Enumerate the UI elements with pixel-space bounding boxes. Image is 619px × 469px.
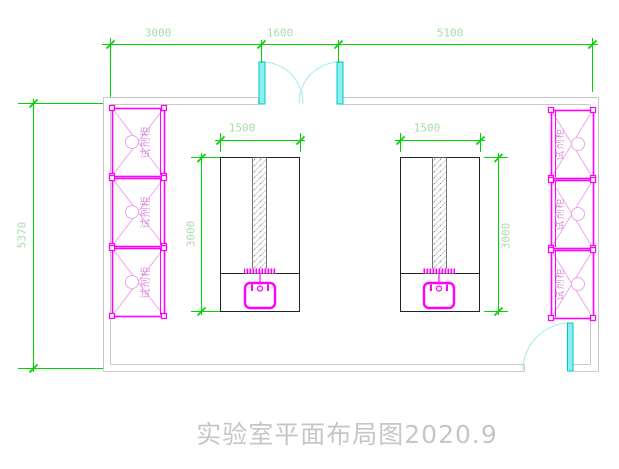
reagent-cabinets: [110, 106, 596, 321]
dimension-lines: [18, 38, 598, 373]
knob-icon: [572, 138, 585, 151]
knob-icon: [126, 136, 139, 149]
bench-reagent-shelf-strip: [253, 158, 267, 274]
dim-label-bench-right-width: 1500: [414, 123, 441, 134]
cabinet-label: 试剂柜: [556, 198, 566, 231]
door-leaf-left: [259, 62, 265, 104]
dim-label-bench-left-depth: 3000: [186, 221, 197, 248]
cabinet-label: 试剂柜: [556, 128, 566, 161]
lab-bench-left: [221, 158, 300, 312]
reagent-cabinet: [110, 246, 167, 319]
dim-label-top-middle: 1600: [267, 28, 294, 39]
knob-icon: [126, 206, 139, 219]
cabinet-label: 试剂柜: [556, 268, 566, 301]
drain-grate-icon: [244, 269, 276, 274]
door-leaf-right: [337, 62, 343, 104]
bench-reagent-shelf-strip: [433, 158, 447, 274]
drain-grate-icon: [423, 269, 455, 274]
knob-icon: [572, 208, 585, 221]
reagent-cabinet: [110, 106, 167, 179]
cabinet-label: 试剂柜: [142, 266, 152, 299]
room-walls: [104, 98, 599, 372]
floor-plan-canvas: 3000 1600 5100 5370 1500 3000 1500 3000 …: [0, 0, 619, 469]
door-swing-arcs: [262, 62, 340, 104]
door-leaf: [568, 323, 574, 371]
dim-label-top-left: 3000: [145, 28, 172, 39]
drawing-title: 实验室平面布局图2020.9: [196, 415, 497, 451]
dim-label-top-right: 5100: [437, 28, 464, 39]
knob-icon: [572, 278, 585, 291]
double-swing-door-top: [259, 62, 343, 104]
reagent-cabinet: [110, 176, 167, 249]
single-swing-door-bottom-right: [523, 323, 573, 371]
lab-bench-right: [401, 158, 480, 312]
cabinet-label: 试剂柜: [142, 196, 152, 229]
dim-label-bench-right-depth: 3000: [501, 223, 512, 250]
floor-plan-linework: [0, 0, 619, 469]
cabinet-label: 试剂柜: [142, 126, 152, 159]
dim-label-left-wall: 5370: [17, 222, 28, 249]
knob-icon: [126, 276, 139, 289]
dim-label-bench-left-width: 1500: [229, 123, 256, 134]
door-swing-arc: [523, 323, 570, 370]
